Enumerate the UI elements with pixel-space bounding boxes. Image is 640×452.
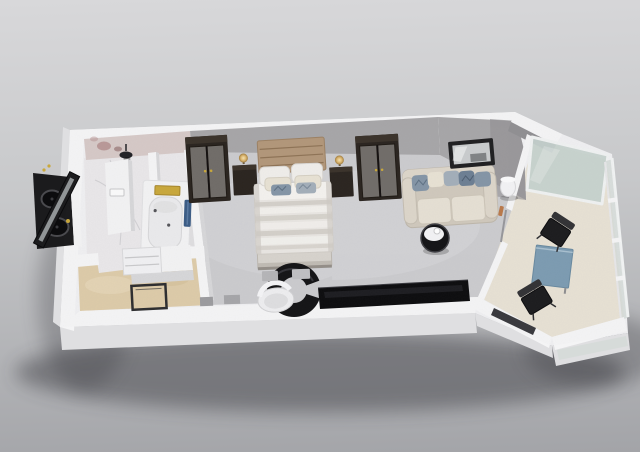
candle [42, 168, 45, 171]
candle [47, 164, 50, 167]
sink-drain [56, 226, 59, 229]
sink-drain [51, 198, 54, 201]
render-canvas [0, 0, 640, 452]
floorplan-3d-render [0, 0, 640, 452]
